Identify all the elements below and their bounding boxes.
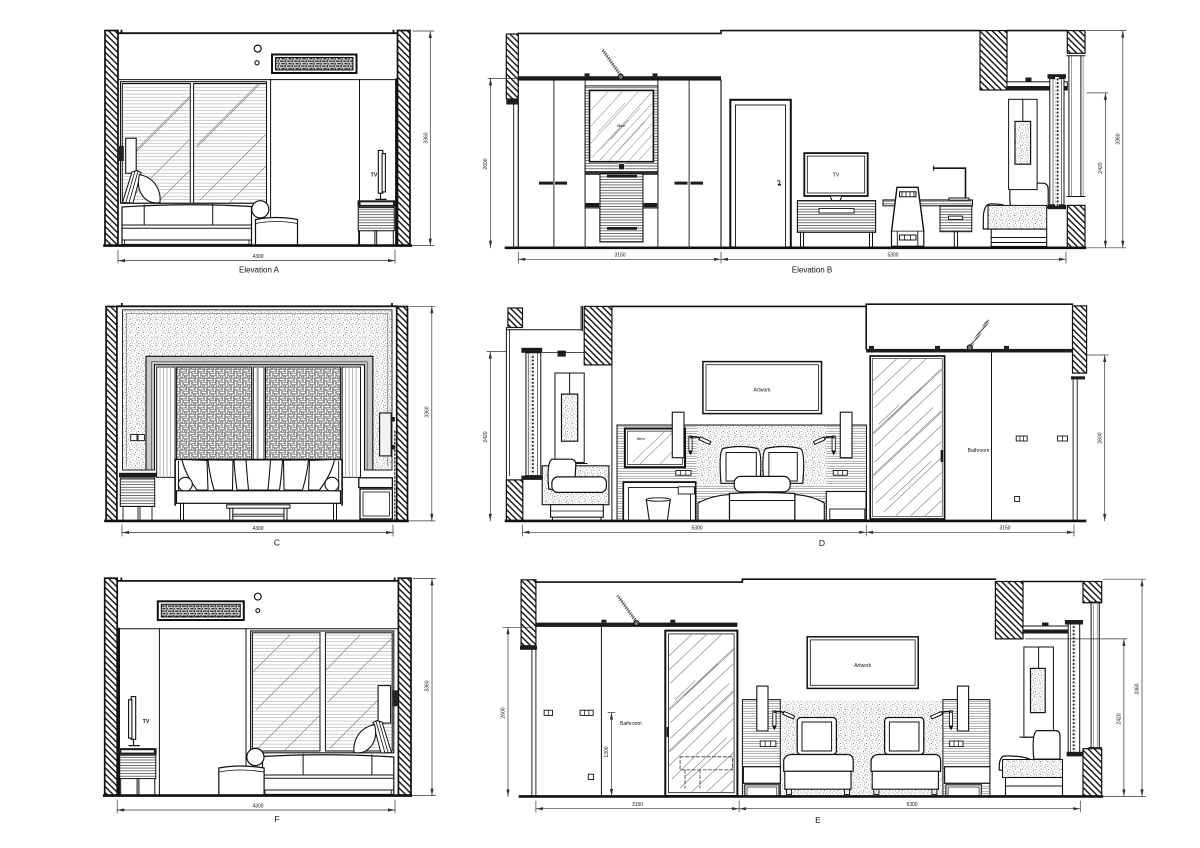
svg-text:Mirror: Mirror [617,124,626,128]
svg-text:3360: 3360 [425,680,431,691]
svg-text:3360: 3360 [424,406,430,417]
svg-text:Bathroom: Bathroom [620,721,642,727]
svg-text:2420: 2420 [483,431,489,442]
svg-text:Artwork: Artwork [854,663,871,669]
svg-text:Bathroom: Bathroom [968,448,990,454]
svg-text:TV: TV [371,173,378,179]
svg-text:Elevation B: Elevation B [792,266,832,275]
svg-text:4300: 4300 [252,803,263,809]
svg-text:5300: 5300 [691,526,702,532]
svg-text:2600: 2600 [1097,432,1103,443]
svg-text:4300: 4300 [252,526,263,532]
svg-text:Elevation A: Elevation A [239,266,280,275]
svg-text:2420: 2420 [1098,162,1104,173]
svg-text:1300: 1300 [604,746,610,757]
svg-text:2420: 2420 [1117,713,1123,724]
svg-text:5300: 5300 [906,802,917,808]
svg-text:3360: 3360 [1116,133,1122,144]
svg-text:3360: 3360 [1135,683,1141,694]
svg-text:4300: 4300 [252,254,263,260]
svg-text:TV: TV [143,719,150,725]
svg-text:Artwork: Artwork [754,388,771,394]
svg-text:5300: 5300 [887,253,898,259]
svg-text:3360: 3360 [424,132,430,143]
svg-text:F: F [274,814,279,824]
svg-text:D: D [819,538,825,548]
svg-text:C: C [274,538,280,548]
svg-text:2600: 2600 [501,707,507,718]
svg-text:Mirror: Mirror [637,437,647,441]
svg-text:3150: 3150 [614,253,625,259]
svg-text:3150: 3150 [999,526,1010,532]
svg-text:TV: TV [833,173,840,179]
svg-text:E: E [815,815,821,825]
svg-text:3150: 3150 [632,802,643,808]
svg-text:2600: 2600 [483,158,489,169]
